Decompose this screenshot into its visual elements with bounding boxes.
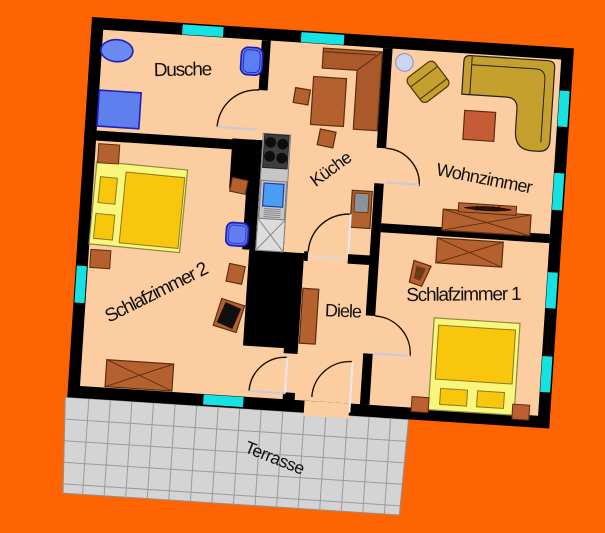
svg-text:Schlafzimmer 1: Schlafzimmer 1 [406,284,521,306]
svg-text:Diele: Diele [325,300,363,321]
svg-text:Dusche: Dusche [154,59,212,81]
